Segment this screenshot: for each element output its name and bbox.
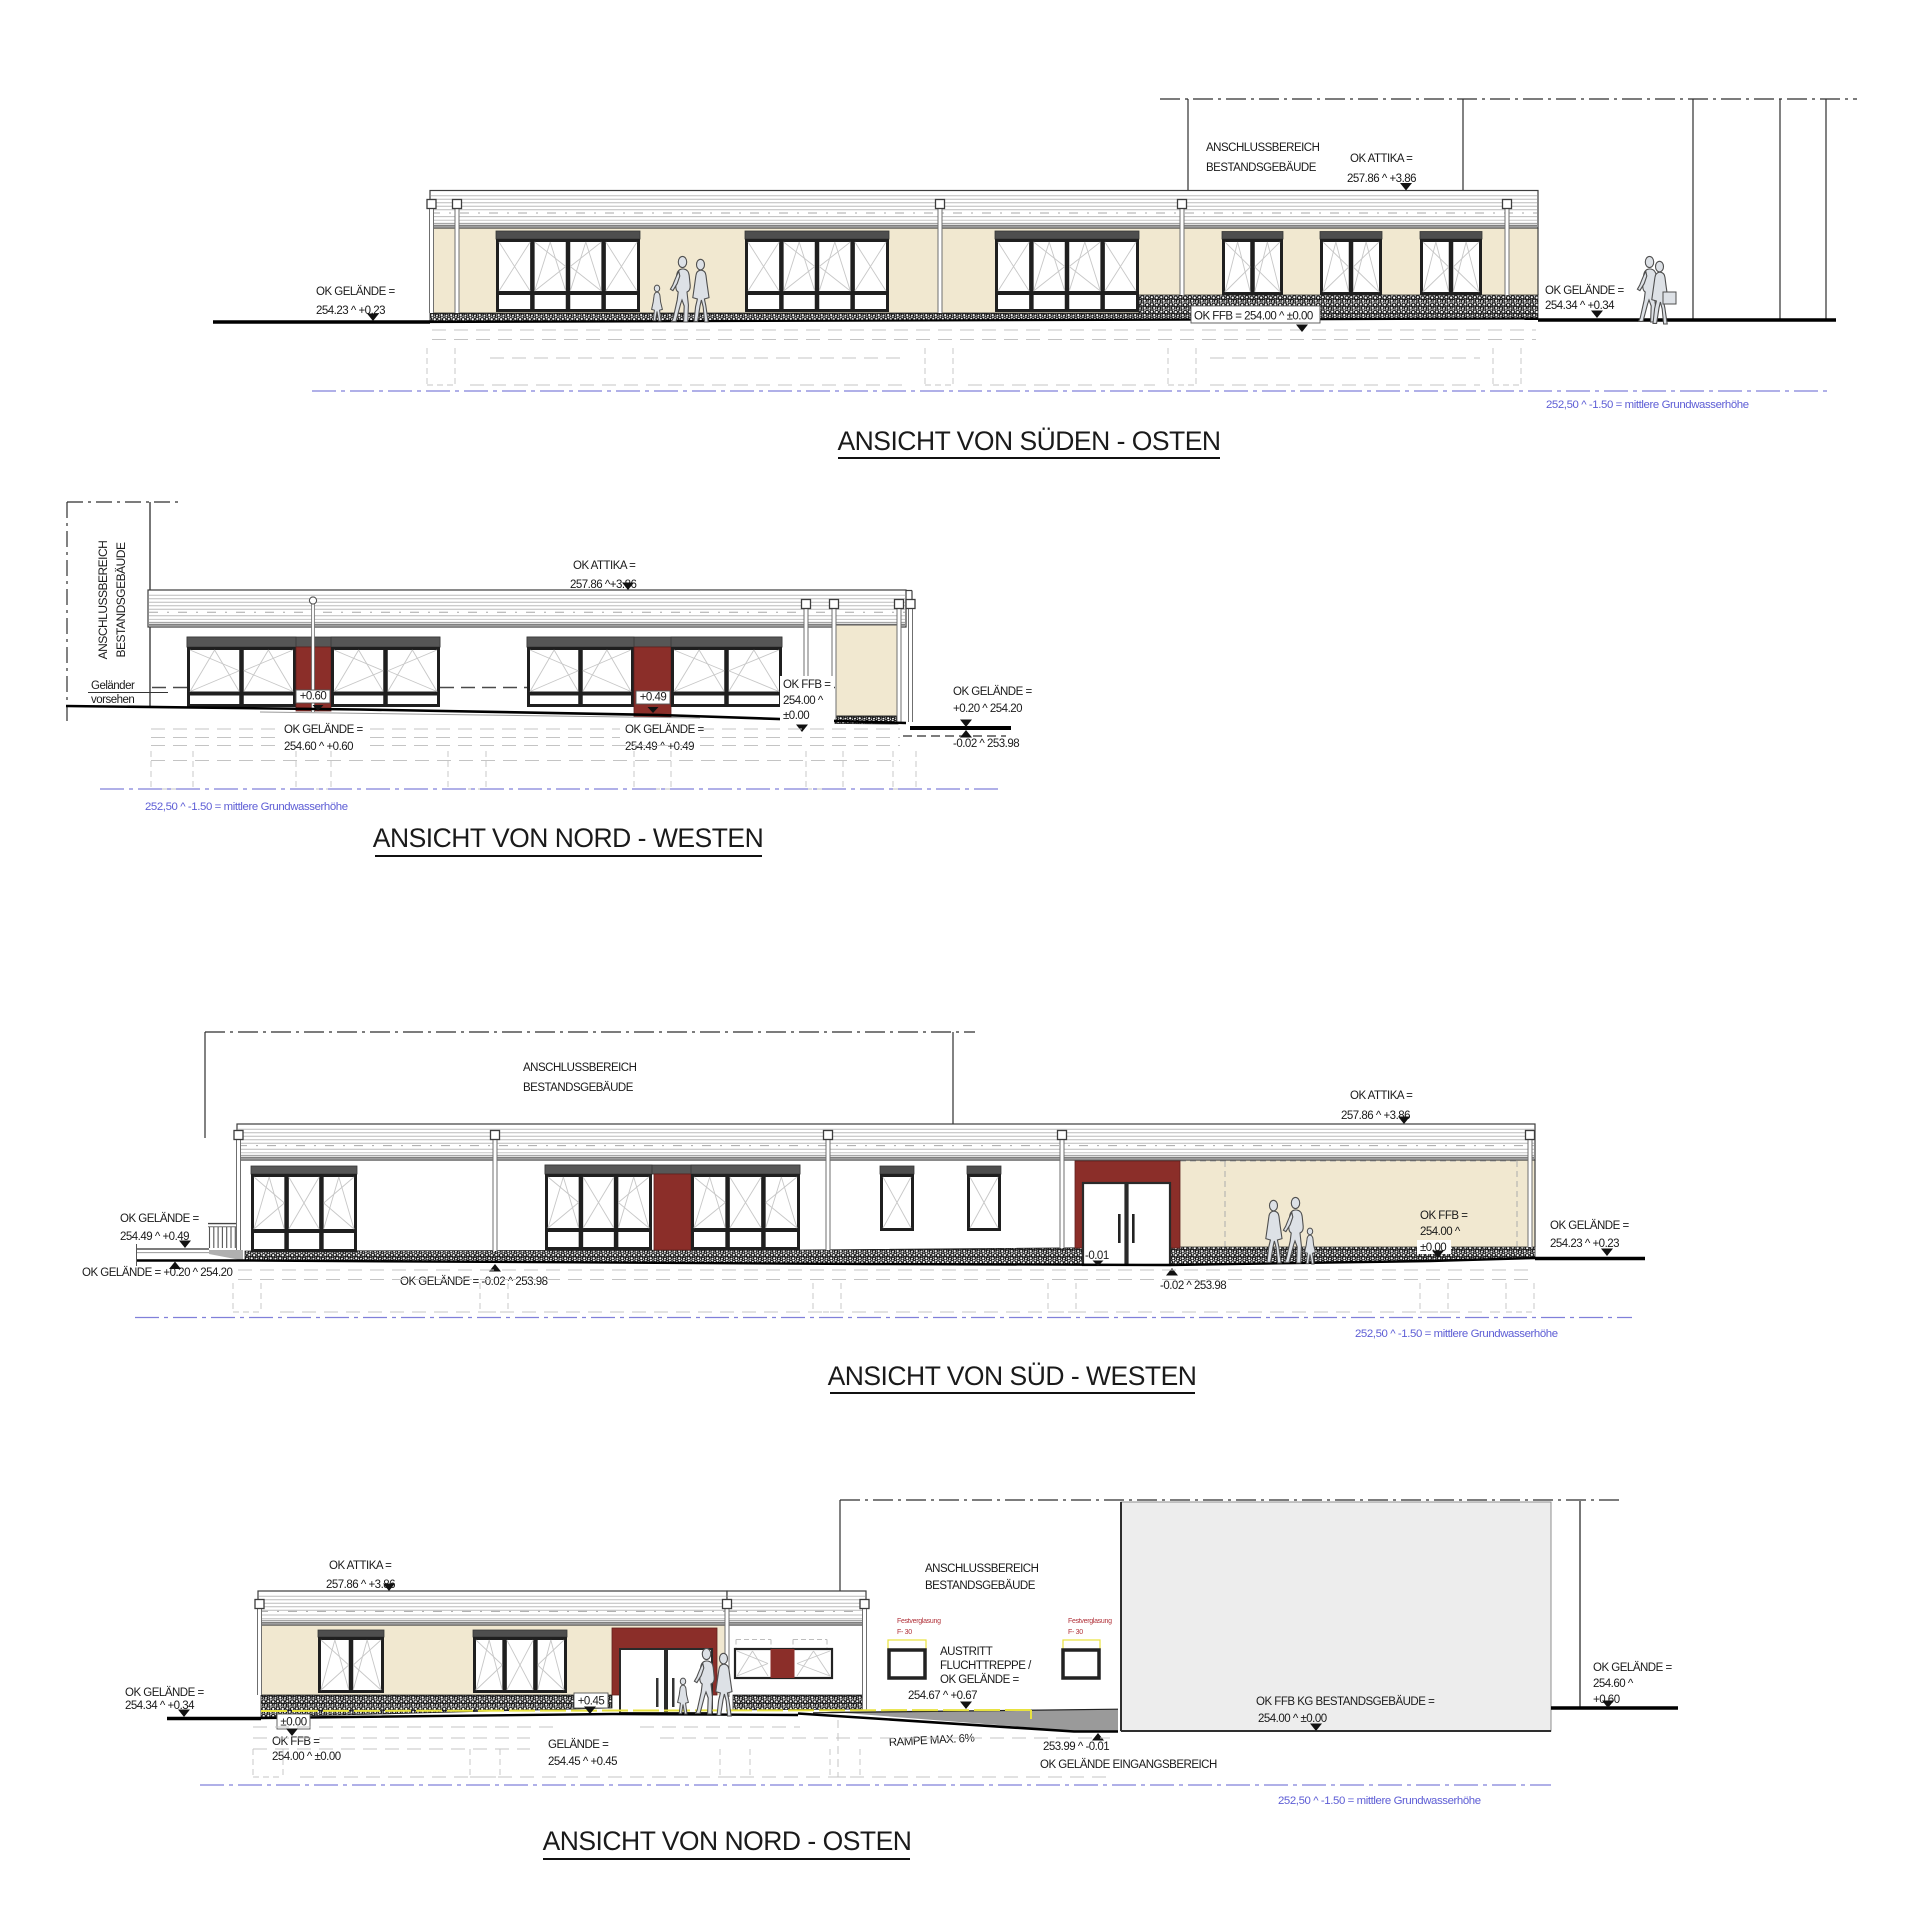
svg-text:OK ATTIKA =: OK ATTIKA = xyxy=(573,560,636,572)
svg-text:OK ATTIKA =: OK ATTIKA = xyxy=(329,1560,392,1572)
svg-text:OK GELÄNDE =: OK GELÄNDE = xyxy=(125,1687,204,1699)
svg-text:OK FFB =: OK FFB = xyxy=(783,679,831,691)
svg-text:OK GELÄNDE =: OK GELÄNDE = xyxy=(1593,1662,1672,1674)
svg-text:ANSICHT VON NORD - WESTEN: ANSICHT VON NORD - WESTEN xyxy=(373,823,763,853)
svg-text:-0.02 ^ 253.98: -0.02 ^ 253.98 xyxy=(953,738,1019,750)
svg-text:252,50 ^ -1.50 = mittlere Grun: 252,50 ^ -1.50 = mittlere Grundwasserhöh… xyxy=(1355,1328,1558,1340)
svg-text:OK FFB =: OK FFB = xyxy=(1420,1210,1468,1222)
svg-text:OK GELÄNDE =: OK GELÄNDE = xyxy=(625,724,704,736)
svg-text:254.00 ^: 254.00 ^ xyxy=(1420,1226,1461,1238)
svg-text:OK FFB KG BESTANDSGEBÄUDE =: OK FFB KG BESTANDSGEBÄUDE = xyxy=(1256,1696,1435,1708)
svg-text:ANSCHLUSSBEREICH: ANSCHLUSSBEREICH xyxy=(523,1062,637,1074)
svg-text:Geländer: Geländer xyxy=(91,680,135,692)
svg-text:OK GELÄNDE =: OK GELÄNDE = xyxy=(120,1213,199,1225)
svg-text:GELÄNDE =: GELÄNDE = xyxy=(548,1739,609,1751)
svg-text:OK GELÄNDE EINGANGSBEREICH: OK GELÄNDE EINGANGSBEREICH xyxy=(1040,1759,1217,1771)
svg-text:254.00 ^: 254.00 ^ xyxy=(783,695,824,707)
svg-text:+0.49: +0.49 xyxy=(640,692,667,704)
svg-text:OK GELÄNDE = +0.20 ^ 254.20: OK GELÄNDE = +0.20 ^ 254.20 xyxy=(82,1267,233,1279)
svg-text:ANSCHLUSSBEREICH: ANSCHLUSSBEREICH xyxy=(1206,142,1320,154)
svg-text:ANSICHT VON SÜDEN - OSTEN: ANSICHT VON SÜDEN - OSTEN xyxy=(837,426,1220,456)
svg-text:254.23 ^ +0.23: 254.23 ^ +0.23 xyxy=(1550,1238,1619,1250)
svg-text:Festverglasung: Festverglasung xyxy=(1068,1618,1112,1625)
svg-text:OK ATTIKA =: OK ATTIKA = xyxy=(1350,153,1413,165)
svg-text:OK GELÄNDE =: OK GELÄNDE = xyxy=(940,1674,1019,1686)
svg-text:254.00 ^ ±0.00: 254.00 ^ ±0.00 xyxy=(272,1751,341,1763)
svg-text:BESTANDSGEBÄUDE: BESTANDSGEBÄUDE xyxy=(925,1580,1036,1592)
svg-text:OK GELÄNDE = -0.02 ^ 253.98: OK GELÄNDE = -0.02 ^ 253.98 xyxy=(400,1276,548,1288)
svg-text:BESTANDSGEBÄUDE: BESTANDSGEBÄUDE xyxy=(114,542,128,657)
svg-text:252,50 ^ -1.50 = mittlere Grun: 252,50 ^ -1.50 = mittlere Grundwasserhöh… xyxy=(145,801,348,813)
svg-text:OK GELÄNDE =: OK GELÄNDE = xyxy=(953,686,1032,698)
svg-text:OK ATTIKA =: OK ATTIKA = xyxy=(1350,1090,1413,1102)
svg-text:254.34 ^ +0.34: 254.34 ^ +0.34 xyxy=(1545,300,1615,312)
svg-text:254.60 ^ +0.60: 254.60 ^ +0.60 xyxy=(284,741,353,753)
svg-text:BESTANDSGEBÄUDE: BESTANDSGEBÄUDE xyxy=(1206,162,1317,174)
svg-text:F- 30: F- 30 xyxy=(1068,1629,1083,1636)
svg-text:OK GELÄNDE =: OK GELÄNDE = xyxy=(1545,285,1624,297)
svg-text:252,50 ^ -1.50 = mittlere Grun: 252,50 ^ -1.50 = mittlere Grundwasserhöh… xyxy=(1278,1795,1481,1807)
svg-text:ANSICHT VON SÜD - WESTEN: ANSICHT VON SÜD - WESTEN xyxy=(828,1361,1197,1391)
svg-text:+0.45: +0.45 xyxy=(578,1696,605,1708)
svg-text:254.00 ^ ±0.00: 254.00 ^ ±0.00 xyxy=(1258,1713,1327,1725)
svg-text:BESTANDSGEBÄUDE: BESTANDSGEBÄUDE xyxy=(523,1082,634,1094)
svg-text:253.99 ^ -0.01: 253.99 ^ -0.01 xyxy=(1043,1741,1109,1753)
svg-text:OK GELÄNDE =: OK GELÄNDE = xyxy=(284,724,363,736)
svg-text:254.67 ^ +0.67: 254.67 ^ +0.67 xyxy=(908,1690,977,1702)
svg-text:254.49 ^ +0.49: 254.49 ^ +0.49 xyxy=(120,1231,189,1243)
svg-text:+0.60: +0.60 xyxy=(300,691,327,703)
svg-text:OK FFB = 254.00 ^ ±0.00: OK FFB = 254.00 ^ ±0.00 xyxy=(1194,311,1313,323)
svg-text:254.49 ^ +0.49: 254.49 ^ +0.49 xyxy=(625,741,694,753)
svg-text:-0.01: -0.01 xyxy=(1085,1250,1109,1262)
svg-text:F- 30: F- 30 xyxy=(897,1629,912,1636)
svg-text:254.60 ^: 254.60 ^ xyxy=(1593,1678,1634,1690)
svg-text:FLUCHTTREPPE /: FLUCHTTREPPE / xyxy=(940,1660,1032,1672)
svg-text:AUSTRITT: AUSTRITT xyxy=(940,1646,993,1658)
svg-text:Festverglasung: Festverglasung xyxy=(897,1618,941,1625)
svg-text:254.45 ^ +0.45: 254.45 ^ +0.45 xyxy=(548,1756,617,1768)
svg-text:OK GELÄNDE =: OK GELÄNDE = xyxy=(1550,1220,1629,1232)
svg-text:-0.02 ^ 253.98: -0.02 ^ 253.98 xyxy=(1160,1280,1226,1292)
svg-text:257.86 ^ +3.86: 257.86 ^ +3.86 xyxy=(1341,1110,1410,1122)
svg-text:+0.20 ^ 254.20: +0.20 ^ 254.20 xyxy=(953,703,1022,715)
svg-text:vorsehen: vorsehen xyxy=(91,694,134,706)
svg-text:OK GELÄNDE =: OK GELÄNDE = xyxy=(316,286,395,298)
svg-text:ANSCHLUSSBEREICH: ANSCHLUSSBEREICH xyxy=(96,541,110,660)
svg-text:252,50 ^ -1.50 = mittlere Grun: 252,50 ^ -1.50 = mittlere Grundwasserhöh… xyxy=(1546,399,1749,411)
svg-text:ANSCHLUSSBEREICH: ANSCHLUSSBEREICH xyxy=(925,1563,1039,1575)
svg-text:±0.00: ±0.00 xyxy=(783,710,809,722)
svg-text:ANSICHT VON NORD - OSTEN: ANSICHT VON NORD - OSTEN xyxy=(543,1826,912,1856)
